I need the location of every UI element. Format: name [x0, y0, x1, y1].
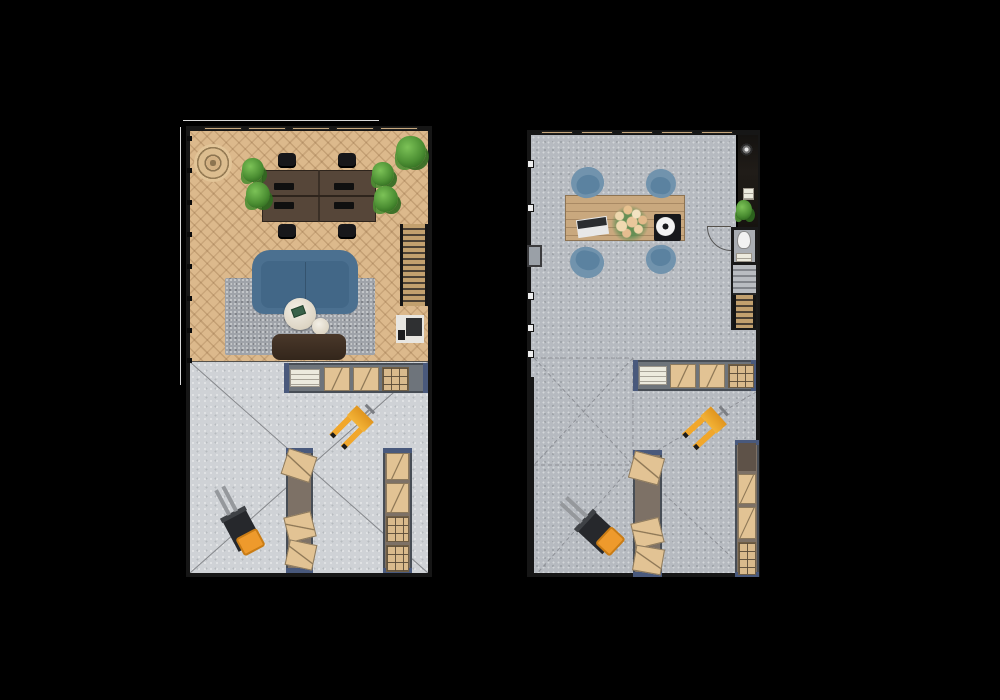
- right-unit-plan: [527, 130, 760, 577]
- window-mullion: [527, 292, 534, 300]
- flower-bouquet: [609, 202, 651, 242]
- stored-crates: [728, 364, 754, 388]
- window-mullion: [187, 296, 192, 301]
- monitor: [334, 202, 354, 209]
- dim-line-vertical: [180, 127, 181, 385]
- empty-bay: [738, 443, 756, 471]
- stored-box: [639, 366, 667, 385]
- dim-line-horizontal: [183, 120, 379, 121]
- staircase: [400, 224, 428, 306]
- window-sill: [701, 131, 733, 134]
- stored-box: [353, 367, 379, 391]
- window-sill: [336, 127, 374, 130]
- window-mullion: [527, 204, 534, 212]
- floor-boundary: [190, 361, 428, 362]
- pendant-lamp: [739, 142, 754, 157]
- stored-box: [290, 369, 320, 387]
- monitor: [274, 202, 294, 209]
- wc-sink: [736, 253, 752, 262]
- window-mullion: [187, 200, 192, 205]
- stored-crates: [382, 367, 409, 391]
- record-player: [654, 214, 681, 241]
- entry-door: [527, 245, 542, 267]
- stored-box: [386, 483, 409, 513]
- floor-plan-canvas: [0, 0, 1000, 700]
- stairs-upper-flight: [733, 265, 756, 293]
- window-mullion: [527, 350, 534, 358]
- window-sill: [204, 127, 242, 130]
- window-mullion: [187, 232, 192, 237]
- wall-lower-left: [527, 377, 534, 577]
- desk-chair: [338, 153, 356, 168]
- stored-box: [738, 474, 756, 504]
- desk-bench: [262, 170, 376, 222]
- round-rug: [194, 144, 232, 182]
- stairs-lower-flight: [733, 295, 756, 328]
- stored-box: [738, 507, 756, 539]
- window-sill: [248, 127, 286, 130]
- console-table: [272, 334, 346, 360]
- window-sill: [581, 131, 613, 134]
- window-sill: [661, 131, 693, 134]
- window-mullion: [187, 358, 192, 363]
- door-leaf: [707, 226, 731, 227]
- window-sill: [292, 127, 330, 130]
- window-mullion: [187, 136, 192, 141]
- stored-box: [670, 364, 696, 388]
- monitor: [274, 183, 294, 190]
- stored-box: [386, 453, 409, 480]
- desk-chair: [278, 153, 296, 168]
- window-mullion: [527, 160, 534, 168]
- stored-crates: [386, 516, 409, 542]
- toilet: [737, 231, 751, 249]
- coffee-table-small: [312, 318, 329, 335]
- window-mullion: [187, 328, 192, 333]
- window-sill: [380, 127, 418, 130]
- window-mullion: [187, 168, 192, 173]
- window-sill: [621, 131, 653, 134]
- window-sill: [541, 131, 573, 134]
- window-mullion: [527, 324, 534, 332]
- wall-right: [428, 126, 432, 577]
- stored-box: [632, 545, 665, 576]
- stored-crates: [738, 542, 756, 575]
- desk-chair: [338, 224, 356, 239]
- stored-crates: [386, 545, 409, 572]
- window-mullion: [187, 264, 192, 269]
- printer: [396, 315, 424, 343]
- stored-box: [285, 539, 318, 570]
- left-unit-plan: [186, 126, 432, 577]
- stored-box: [324, 367, 350, 391]
- monitor: [334, 183, 354, 190]
- stored-box: [699, 364, 725, 388]
- wall-art: [743, 188, 754, 200]
- wall-left: [186, 126, 190, 577]
- desk-chair: [278, 224, 296, 239]
- wall-bottom: [186, 573, 432, 577]
